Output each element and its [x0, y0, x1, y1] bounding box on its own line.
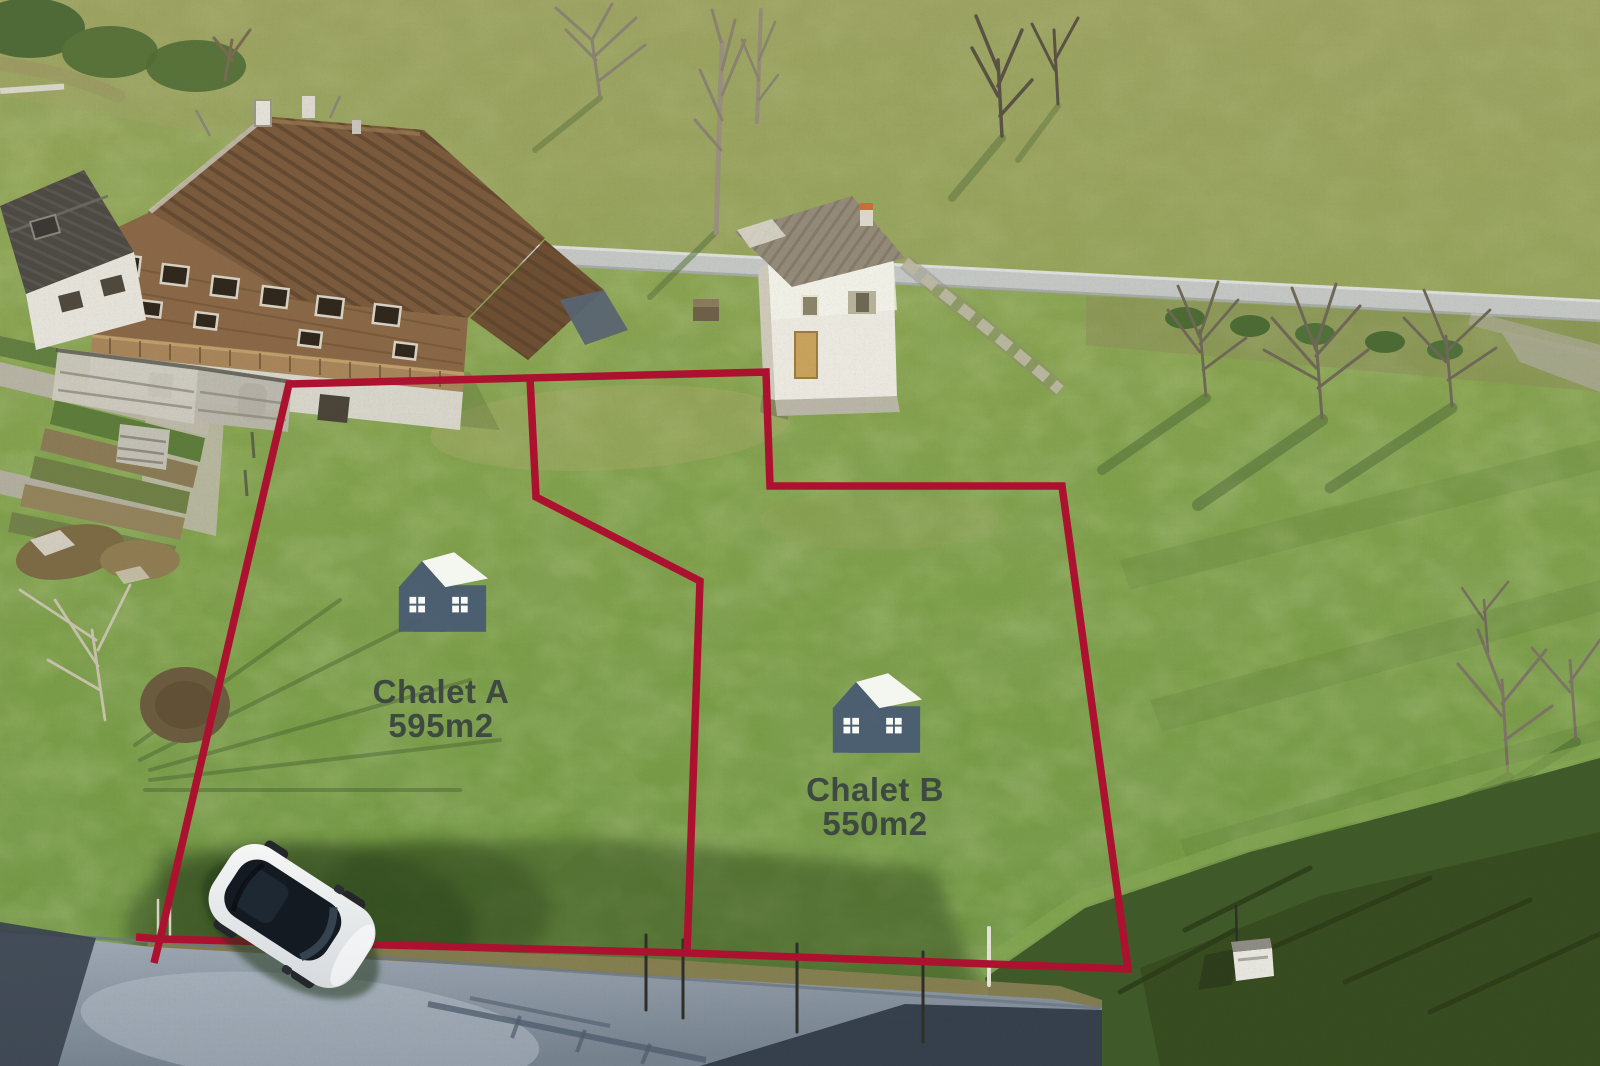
parcel-b-marker: Chalet B 550m2 — [765, 668, 985, 842]
photo-canvas — [0, 0, 1600, 1066]
parcel-b-area: 550m2 — [765, 807, 985, 841]
parcel-a-marker: Chalet A 595m2 — [331, 547, 551, 744]
aerial-photo: Chalet A 595m2 Chalet B 550m2 — [0, 0, 1600, 1066]
parcel-b-name: Chalet B — [765, 773, 985, 807]
parcel-a-name: Chalet A — [331, 675, 551, 709]
house-icon-b — [827, 668, 924, 760]
parcel-a-area: 595m2 — [331, 709, 551, 743]
house-icon-a — [393, 547, 490, 639]
